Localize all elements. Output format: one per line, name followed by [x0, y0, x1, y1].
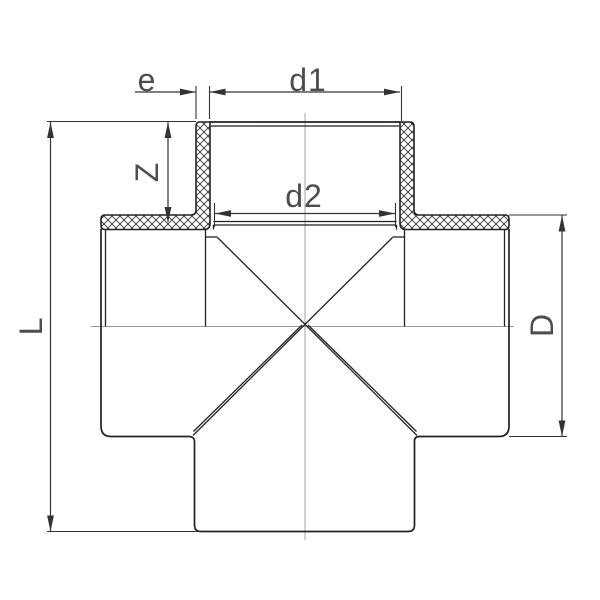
hatched-wall-right	[400, 122, 509, 230]
dimension-label-e: e	[138, 64, 157, 96]
dimension-arrowheads	[47, 89, 565, 532]
dimension-label-d: D	[526, 313, 558, 337]
extension-lines	[47, 86, 567, 532]
dimension-label-l: L	[15, 317, 47, 336]
technical-drawing-canvas: e d1 d2 Z L D	[0, 0, 600, 600]
dimension-label-d1: d1	[289, 64, 327, 96]
dimension-label-d2: d2	[285, 180, 323, 212]
dimension-lines	[51, 92, 563, 532]
dimension-label-z: Z	[131, 162, 163, 183]
